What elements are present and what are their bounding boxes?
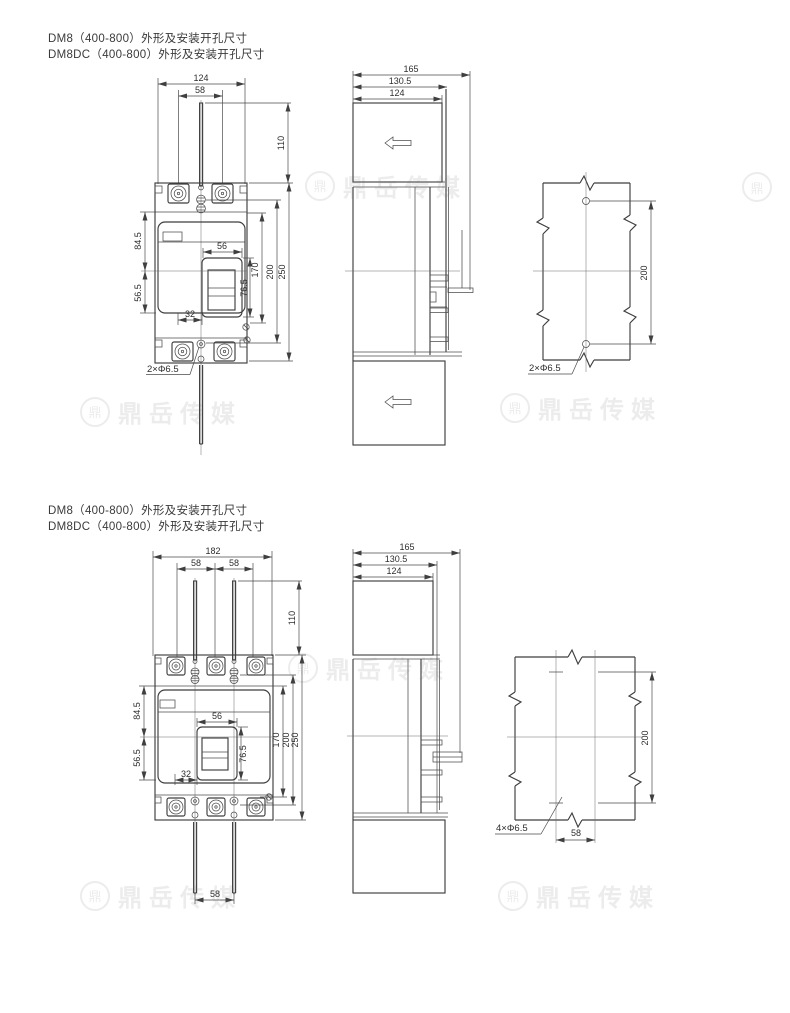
nameplate bbox=[160, 700, 175, 708]
dim-110: 110 bbox=[287, 611, 297, 625]
dim-182: 182 bbox=[205, 546, 220, 556]
panel-top-edge bbox=[515, 650, 635, 664]
dim-84-5: 84.5 bbox=[133, 232, 143, 250]
hole-callout-label: 4×Φ6.5 bbox=[496, 823, 528, 834]
dim-165: 165 bbox=[399, 542, 414, 552]
terminal-lug bbox=[247, 657, 265, 675]
dim-58-right: 58 bbox=[229, 558, 239, 568]
dim-84-5: 84.5 bbox=[132, 702, 142, 720]
panel-left-edge bbox=[537, 183, 549, 360]
fig2-front-view: 182 58 58 110 bbox=[132, 546, 306, 904]
side-top-block bbox=[353, 581, 433, 655]
dim-56-5: 56.5 bbox=[132, 749, 142, 767]
dim-32: 32 bbox=[181, 769, 191, 779]
terminal-lug bbox=[167, 798, 185, 816]
dim-250: 250 bbox=[290, 732, 300, 747]
terminal-lug bbox=[207, 657, 225, 675]
dim-124: 124 bbox=[386, 566, 401, 576]
direction-arrow-icon bbox=[385, 137, 411, 149]
panel-top-edge bbox=[543, 176, 630, 190]
dim-170: 170 bbox=[250, 262, 260, 277]
dim-200: 200 bbox=[640, 730, 650, 745]
dim-58: 58 bbox=[571, 828, 581, 838]
diagram-canvas: 124 58 110 bbox=[0, 0, 790, 1013]
dim-76-5: 76.5 bbox=[239, 279, 249, 297]
fig1-mounting-pattern: 200 2×Φ6.5 bbox=[528, 172, 656, 374]
terminal-lug bbox=[247, 798, 265, 816]
hole-callout-label: 2×Φ6.5 bbox=[529, 363, 561, 374]
dim-58-bottom: 58 bbox=[210, 889, 220, 899]
dim-124: 124 bbox=[389, 88, 404, 98]
side-top-block bbox=[353, 103, 442, 182]
dim-56: 56 bbox=[217, 241, 227, 251]
toggle-handle bbox=[208, 270, 235, 310]
document-page: 鼎 鼎岳传媒 鼎 鼎岳传媒 鼎 鼎岳传媒 鼎 鼎岳传媒 鼎 鼎岳传媒 鼎 鼎岳传… bbox=[0, 0, 790, 1013]
fig1-side-view: 165 130.5 124 bbox=[345, 64, 473, 445]
dim-130-5: 130.5 bbox=[385, 554, 408, 564]
dim-200: 200 bbox=[639, 265, 649, 280]
dim-56-5: 56.5 bbox=[133, 284, 143, 302]
dim-130-5: 130.5 bbox=[389, 76, 412, 86]
fig2-side-view: 165 130.5 124 bbox=[347, 542, 462, 893]
terminal-lug bbox=[167, 657, 185, 675]
side-bottom-block bbox=[353, 361, 445, 445]
dim-110: 110 bbox=[276, 136, 286, 150]
dim-32: 32 bbox=[185, 309, 195, 319]
fig2-mounting-pattern: 200 58 4×Φ6.5 bbox=[495, 650, 656, 843]
terminal-lug bbox=[207, 798, 225, 816]
dim-200: 200 bbox=[265, 264, 275, 279]
toggle-handle bbox=[202, 738, 228, 770]
dim-76-5: 76.5 bbox=[238, 745, 248, 763]
terminal-bar bbox=[448, 288, 473, 293]
dim-170: 170 bbox=[271, 732, 281, 747]
dim-58: 58 bbox=[195, 85, 205, 95]
panel-right-edge bbox=[624, 183, 636, 360]
nameplate bbox=[163, 232, 182, 241]
side-bottom-block bbox=[353, 820, 445, 893]
direction-arrow-icon bbox=[385, 396, 411, 408]
dim-124: 124 bbox=[193, 73, 208, 83]
dim-58-left: 58 bbox=[191, 558, 201, 568]
fig1-front-view: 124 58 110 bbox=[133, 73, 293, 455]
dim-56: 56 bbox=[212, 711, 222, 721]
panel-bottom-edge bbox=[515, 813, 635, 827]
hole-callout-label: 2×Φ6.5 bbox=[147, 364, 179, 375]
handle-cutout bbox=[197, 727, 237, 780]
terminal-step bbox=[430, 287, 447, 307]
dim-250: 250 bbox=[277, 264, 287, 279]
panel-left-edge bbox=[509, 657, 521, 820]
dim-165: 165 bbox=[403, 64, 418, 74]
